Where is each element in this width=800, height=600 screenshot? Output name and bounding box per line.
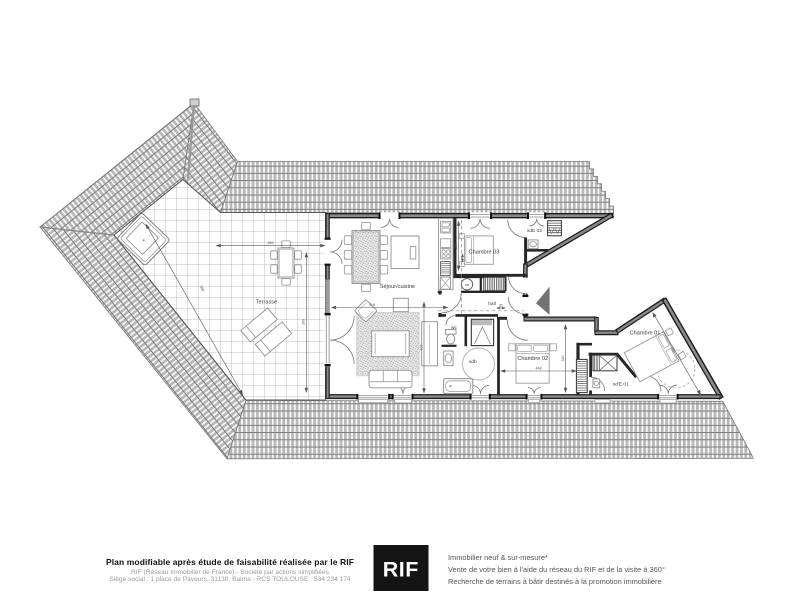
svg-text:309: 309 (302, 319, 306, 325)
svg-text:Chambre 02: Chambre 02 (517, 356, 548, 362)
svg-text:407: 407 (419, 345, 423, 351)
svg-text:546: 546 (268, 241, 274, 245)
svg-text:Séjour/cuisine: Séjour/cuisine (380, 284, 415, 290)
svg-text:Terrasse: Terrasse (256, 299, 277, 305)
svg-text:sd'E 01: sd'E 01 (613, 381, 629, 387)
svg-text:sdE 02: sdE 02 (527, 228, 543, 234)
svg-text:85: 85 (499, 304, 503, 308)
svg-text:340: 340 (561, 356, 565, 362)
svg-text:hall: hall (488, 301, 496, 307)
svg-text:Chambre 01: Chambre 01 (630, 331, 661, 337)
svg-text:448: 448 (536, 367, 542, 371)
svg-text:260: 260 (454, 243, 458, 249)
svg-text:519: 519 (369, 303, 375, 307)
svg-text:wc: wc (451, 326, 458, 331)
svg-text:sdb: sdb (469, 359, 477, 365)
svg-text:Chambre 03: Chambre 03 (469, 250, 500, 256)
